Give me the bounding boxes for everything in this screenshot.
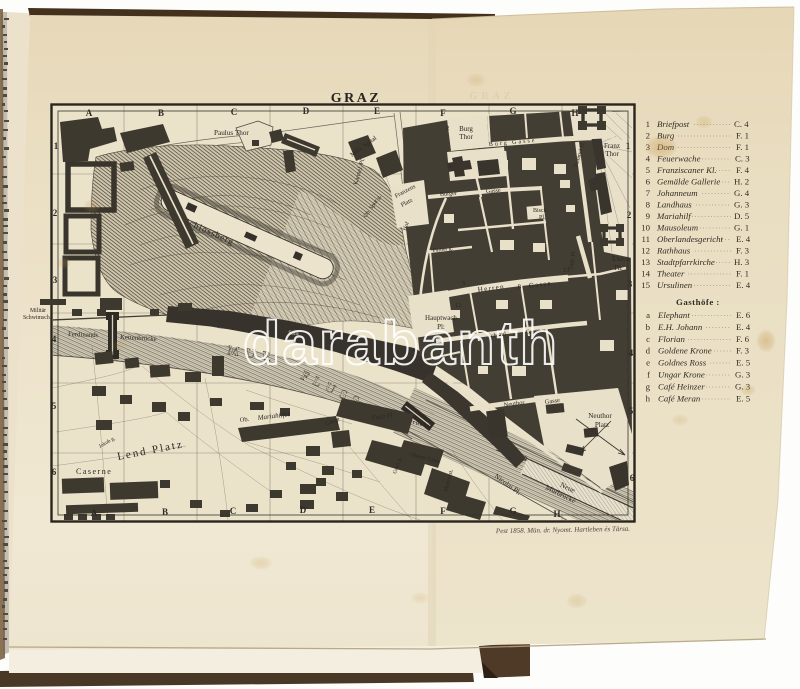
svg-text:Thor: Thor	[459, 133, 473, 141]
svg-text:7: 7	[646, 188, 651, 198]
svg-text:4: 4	[629, 348, 634, 358]
svg-text:G. 3: G. 3	[734, 200, 750, 210]
svg-text:F. 1: F. 1	[736, 131, 749, 141]
svg-text:E.H. Johann: E.H. Johann	[657, 322, 703, 332]
svg-text:F. 3: F. 3	[736, 346, 750, 356]
svg-text:Schwimsch.: Schwimsch.	[23, 315, 52, 321]
svg-text:Theater: Theater	[657, 269, 685, 279]
svg-text:5: 5	[462, 280, 465, 287]
svg-text:Oberlandesgericht: Oberlandesgericht	[657, 234, 724, 244]
svg-text:Militär: Militär	[30, 308, 46, 314]
svg-text:Goldene Krone: Goldene Krone	[658, 346, 712, 356]
svg-text:E. 4: E. 4	[736, 322, 751, 332]
svg-text:Stadtpfarrkirche: Stadtpfarrkirche	[657, 257, 715, 267]
svg-text:Caserne: Caserne	[76, 467, 112, 476]
svg-text:2: 2	[446, 125, 449, 132]
svg-text:Ferdinands: Ferdinands	[68, 331, 99, 339]
svg-text:Ob.: Ob.	[239, 416, 250, 424]
svg-text:G: G	[509, 506, 516, 516]
svg-text:B: B	[162, 507, 168, 517]
svg-text:E. 4: E. 4	[736, 280, 751, 290]
svg-text:10: 10	[641, 223, 650, 233]
svg-text:c: c	[646, 334, 650, 344]
svg-text:H. 2: H. 2	[734, 177, 749, 187]
svg-text:12: 12	[455, 302, 462, 309]
svg-text:C: C	[230, 506, 237, 516]
svg-text:G. 1: G. 1	[734, 223, 749, 233]
svg-text:D: D	[300, 505, 307, 515]
svg-text:F. 1: F. 1	[736, 269, 749, 279]
svg-text:Thor: Thor	[605, 150, 619, 158]
svg-text:F. 6: F. 6	[736, 334, 750, 344]
svg-text:F. 1: F. 1	[736, 142, 749, 152]
svg-text:13: 13	[563, 267, 570, 274]
svg-text:h: h	[646, 394, 651, 404]
svg-text:15: 15	[641, 280, 650, 290]
svg-text:C. 3: C. 3	[735, 154, 750, 164]
svg-text:Briefpost: Briefpost	[657, 119, 690, 129]
svg-text:F. 4: F. 4	[736, 165, 750, 175]
svg-text:B: B	[158, 108, 164, 118]
svg-text:Gasse: Gasse	[486, 187, 501, 195]
svg-text:9: 9	[646, 211, 651, 221]
svg-text:3: 3	[628, 279, 633, 289]
svg-text:3: 3	[448, 163, 451, 170]
svg-text:2: 2	[53, 208, 58, 218]
svg-text:Neuthor: Neuthor	[588, 412, 612, 420]
svg-text:Gasthöfe :: Gasthöfe :	[676, 297, 720, 307]
svg-text:Bürger: Bürger	[440, 190, 458, 198]
svg-text:Mariahilf: Mariahilf	[656, 211, 692, 221]
svg-text:14: 14	[641, 269, 650, 279]
svg-text:1: 1	[336, 420, 339, 427]
svg-text:G. 3: G. 3	[735, 370, 751, 380]
svg-text:Paulus Thor: Paulus Thor	[214, 129, 249, 137]
svg-text:Platz: Platz	[595, 421, 609, 429]
svg-text:F: F	[440, 108, 446, 118]
svg-text:D. 5: D. 5	[734, 211, 750, 221]
svg-text:C. 4: C. 4	[734, 119, 749, 129]
svg-text:5: 5	[646, 165, 651, 175]
svg-text:Café Heinzer: Café Heinzer	[658, 382, 705, 392]
svg-text:Burg: Burg	[459, 125, 473, 133]
svg-text:1: 1	[646, 119, 650, 129]
svg-text:Johanneum: Johanneum	[657, 188, 698, 198]
svg-text:6: 6	[646, 177, 651, 187]
svg-text:8: 8	[646, 200, 651, 210]
svg-text:Franziscaner Kl.: Franziscaner Kl.	[656, 165, 717, 175]
svg-text:E. 6: E. 6	[736, 310, 751, 320]
svg-text:f: f	[647, 370, 650, 380]
svg-text:Gemälde Gallerie: Gemälde Gallerie	[657, 177, 720, 187]
svg-text:5: 5	[629, 406, 634, 416]
svg-text:Ursulinen: Ursulinen	[657, 280, 693, 290]
svg-text:Goldnes Ross: Goldnes Ross	[658, 358, 707, 368]
svg-text:Rathhaus: Rathhaus	[656, 246, 691, 256]
svg-text:Pl.: Pl.	[539, 215, 546, 221]
svg-text:a: a	[646, 310, 650, 320]
svg-text:F. 3: F. 3	[736, 246, 750, 256]
svg-text:Café Meran: Café Meran	[658, 394, 701, 404]
svg-text:Franz: Franz	[604, 142, 620, 150]
svg-text:GRAZ: GRAZ	[470, 91, 515, 102]
svg-text:Bisch.: Bisch.	[533, 208, 549, 214]
svg-text:A: A	[91, 508, 98, 518]
svg-text:d: d	[646, 346, 651, 356]
svg-text:H: H	[571, 108, 578, 118]
svg-text:Ungar Krone: Ungar Krone	[658, 370, 705, 380]
svg-text:C: C	[231, 107, 238, 117]
svg-text:A: A	[86, 108, 93, 118]
svg-text:12: 12	[641, 246, 650, 256]
svg-text:11: 11	[642, 234, 650, 244]
svg-text:E. 4: E. 4	[736, 234, 751, 244]
svg-text:13: 13	[641, 257, 650, 267]
svg-text:Mausoleum: Mausoleum	[656, 223, 698, 233]
svg-text:b: b	[646, 322, 651, 332]
svg-text:Landhaus: Landhaus	[656, 200, 692, 210]
svg-text:E. 5: E. 5	[736, 358, 751, 368]
svg-text:Elephant: Elephant	[657, 310, 690, 320]
svg-text:H: H	[553, 509, 560, 519]
svg-text:H. 3: H. 3	[734, 257, 750, 267]
svg-text:3: 3	[53, 275, 58, 285]
svg-text:Th.: Th.	[613, 264, 623, 272]
svg-text:Florian: Florian	[657, 334, 685, 344]
svg-text:G. 4: G. 4	[734, 188, 750, 198]
svg-text:2: 2	[627, 210, 632, 220]
svg-text:F: F	[440, 506, 446, 516]
svg-text:g: g	[646, 382, 651, 392]
svg-text:E: E	[369, 505, 375, 515]
svg-text:e: e	[646, 358, 650, 368]
svg-text:darabanth: darabanth	[243, 309, 559, 377]
